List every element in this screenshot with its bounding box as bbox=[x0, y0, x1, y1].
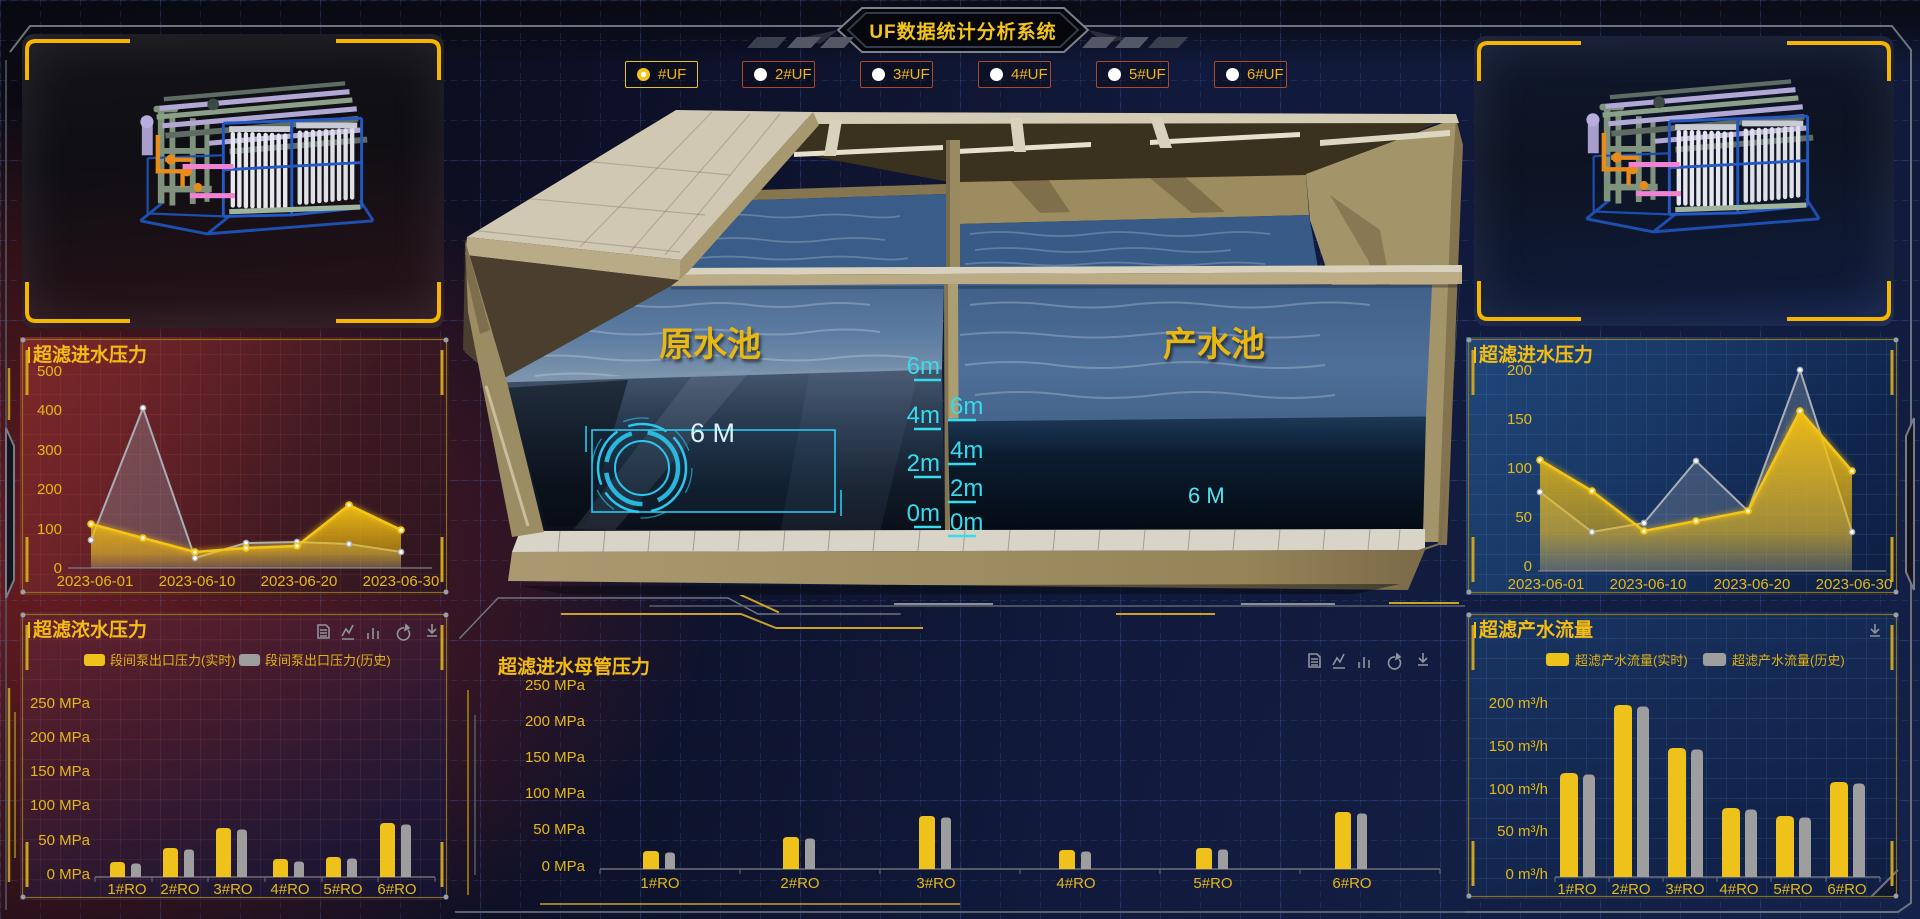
svg-text:200 m³/h: 200 m³/h bbox=[1489, 695, 1548, 712]
svg-text:1#RO: 1#RO bbox=[1557, 881, 1596, 898]
svg-text:3#RO: 3#RO bbox=[916, 875, 955, 892]
svg-text:5#RO: 5#RO bbox=[1773, 881, 1812, 898]
svg-text:0m: 0m bbox=[950, 509, 983, 536]
svg-text:超滤产水流量(实时): 超滤产水流量(实时) bbox=[1575, 653, 1688, 668]
svg-text:4#RO: 4#RO bbox=[1056, 875, 1095, 892]
svg-text:2#RO: 2#RO bbox=[780, 875, 819, 892]
svg-text:100 MPa: 100 MPa bbox=[30, 797, 91, 814]
svg-text:6#RO: 6#RO bbox=[1332, 875, 1371, 892]
svg-text:50: 50 bbox=[1515, 509, 1532, 526]
svg-text:2023-06-20: 2023-06-20 bbox=[1714, 576, 1791, 593]
svg-text:4m: 4m bbox=[907, 402, 940, 429]
svg-text:6 M: 6 M bbox=[1188, 483, 1225, 508]
svg-text:超滤进水母管压力: 超滤进水母管压力 bbox=[497, 655, 650, 678]
svg-text:段间泵出口压力(实时): 段间泵出口压力(实时) bbox=[110, 653, 236, 668]
svg-text:2023-06-30: 2023-06-30 bbox=[1816, 576, 1893, 593]
svg-text:4#RO: 4#RO bbox=[270, 881, 309, 898]
svg-text:5#RO: 5#RO bbox=[323, 881, 362, 898]
svg-text:500: 500 bbox=[37, 363, 62, 380]
svg-text:2m: 2m bbox=[907, 450, 940, 477]
svg-text:100: 100 bbox=[37, 521, 62, 538]
svg-text:6#RO: 6#RO bbox=[1827, 881, 1866, 898]
svg-text:2023-06-01: 2023-06-01 bbox=[57, 573, 134, 590]
svg-text:6 M: 6 M bbox=[690, 418, 735, 448]
svg-text:段间泵出口压力(历史): 段间泵出口压力(历史) bbox=[265, 653, 391, 668]
svg-text:0 MPa: 0 MPa bbox=[542, 858, 586, 875]
svg-text:0 m³/h: 0 m³/h bbox=[1505, 866, 1548, 883]
svg-text:100 m³/h: 100 m³/h bbox=[1489, 781, 1548, 798]
svg-text:超滤浓水压力: 超滤浓水压力 bbox=[32, 618, 147, 641]
svg-text:200 MPa: 200 MPa bbox=[525, 713, 586, 730]
svg-text:6#RO: 6#RO bbox=[377, 881, 416, 898]
svg-text:6m: 6m bbox=[950, 393, 983, 420]
svg-text:3#RO: 3#RO bbox=[213, 881, 252, 898]
svg-text:100: 100 bbox=[1507, 460, 1532, 477]
svg-text:1#RO: 1#RO bbox=[107, 881, 146, 898]
svg-text:400: 400 bbox=[37, 402, 62, 419]
svg-text:150 MPa: 150 MPa bbox=[525, 749, 586, 766]
svg-text:0 MPa: 0 MPa bbox=[47, 866, 91, 883]
svg-text:50 MPa: 50 MPa bbox=[533, 821, 585, 838]
svg-text:2#RO: 2#RO bbox=[1611, 881, 1650, 898]
svg-text:超滤产水流量(历史): 超滤产水流量(历史) bbox=[1732, 653, 1845, 668]
svg-text:产水池: 产水池 bbox=[1163, 326, 1265, 364]
svg-text:250 MPa: 250 MPa bbox=[525, 677, 586, 694]
svg-text:4m: 4m bbox=[950, 437, 983, 464]
svg-text:2023-06-30: 2023-06-30 bbox=[363, 573, 440, 590]
svg-text:50 MPa: 50 MPa bbox=[38, 832, 90, 849]
svg-text:2#RO: 2#RO bbox=[160, 881, 199, 898]
svg-text:200 MPa: 200 MPa bbox=[30, 729, 91, 746]
svg-text:150 MPa: 150 MPa bbox=[30, 763, 91, 780]
svg-text:200: 200 bbox=[37, 481, 62, 498]
svg-text:2023-06-10: 2023-06-10 bbox=[1610, 576, 1687, 593]
svg-text:250 MPa: 250 MPa bbox=[30, 695, 91, 712]
svg-text:2023-06-10: 2023-06-10 bbox=[159, 573, 236, 590]
svg-text:50 m³/h: 50 m³/h bbox=[1497, 823, 1548, 840]
svg-text:3#RO: 3#RO bbox=[1665, 881, 1704, 898]
svg-text:200: 200 bbox=[1507, 362, 1532, 379]
svg-text:超滤进水压力: 超滤进水压力 bbox=[1478, 343, 1593, 366]
svg-text:0: 0 bbox=[1524, 558, 1532, 575]
svg-text:原水池: 原水池 bbox=[659, 326, 761, 364]
svg-text:2023-06-20: 2023-06-20 bbox=[261, 573, 338, 590]
svg-text:0m: 0m bbox=[907, 500, 940, 527]
svg-text:5#RO: 5#RO bbox=[1193, 875, 1232, 892]
svg-text:超滤产水流量: 超滤产水流量 bbox=[1478, 618, 1593, 641]
svg-text:4#RO: 4#RO bbox=[1719, 881, 1758, 898]
svg-text:2023-06-01: 2023-06-01 bbox=[1508, 576, 1585, 593]
svg-text:300: 300 bbox=[37, 442, 62, 459]
svg-text:100 MPa: 100 MPa bbox=[525, 785, 586, 802]
svg-text:1#RO: 1#RO bbox=[640, 875, 679, 892]
svg-text:2m: 2m bbox=[950, 475, 983, 502]
svg-text:150 m³/h: 150 m³/h bbox=[1489, 738, 1548, 755]
svg-text:6m: 6m bbox=[907, 353, 940, 380]
svg-text:150: 150 bbox=[1507, 411, 1532, 428]
